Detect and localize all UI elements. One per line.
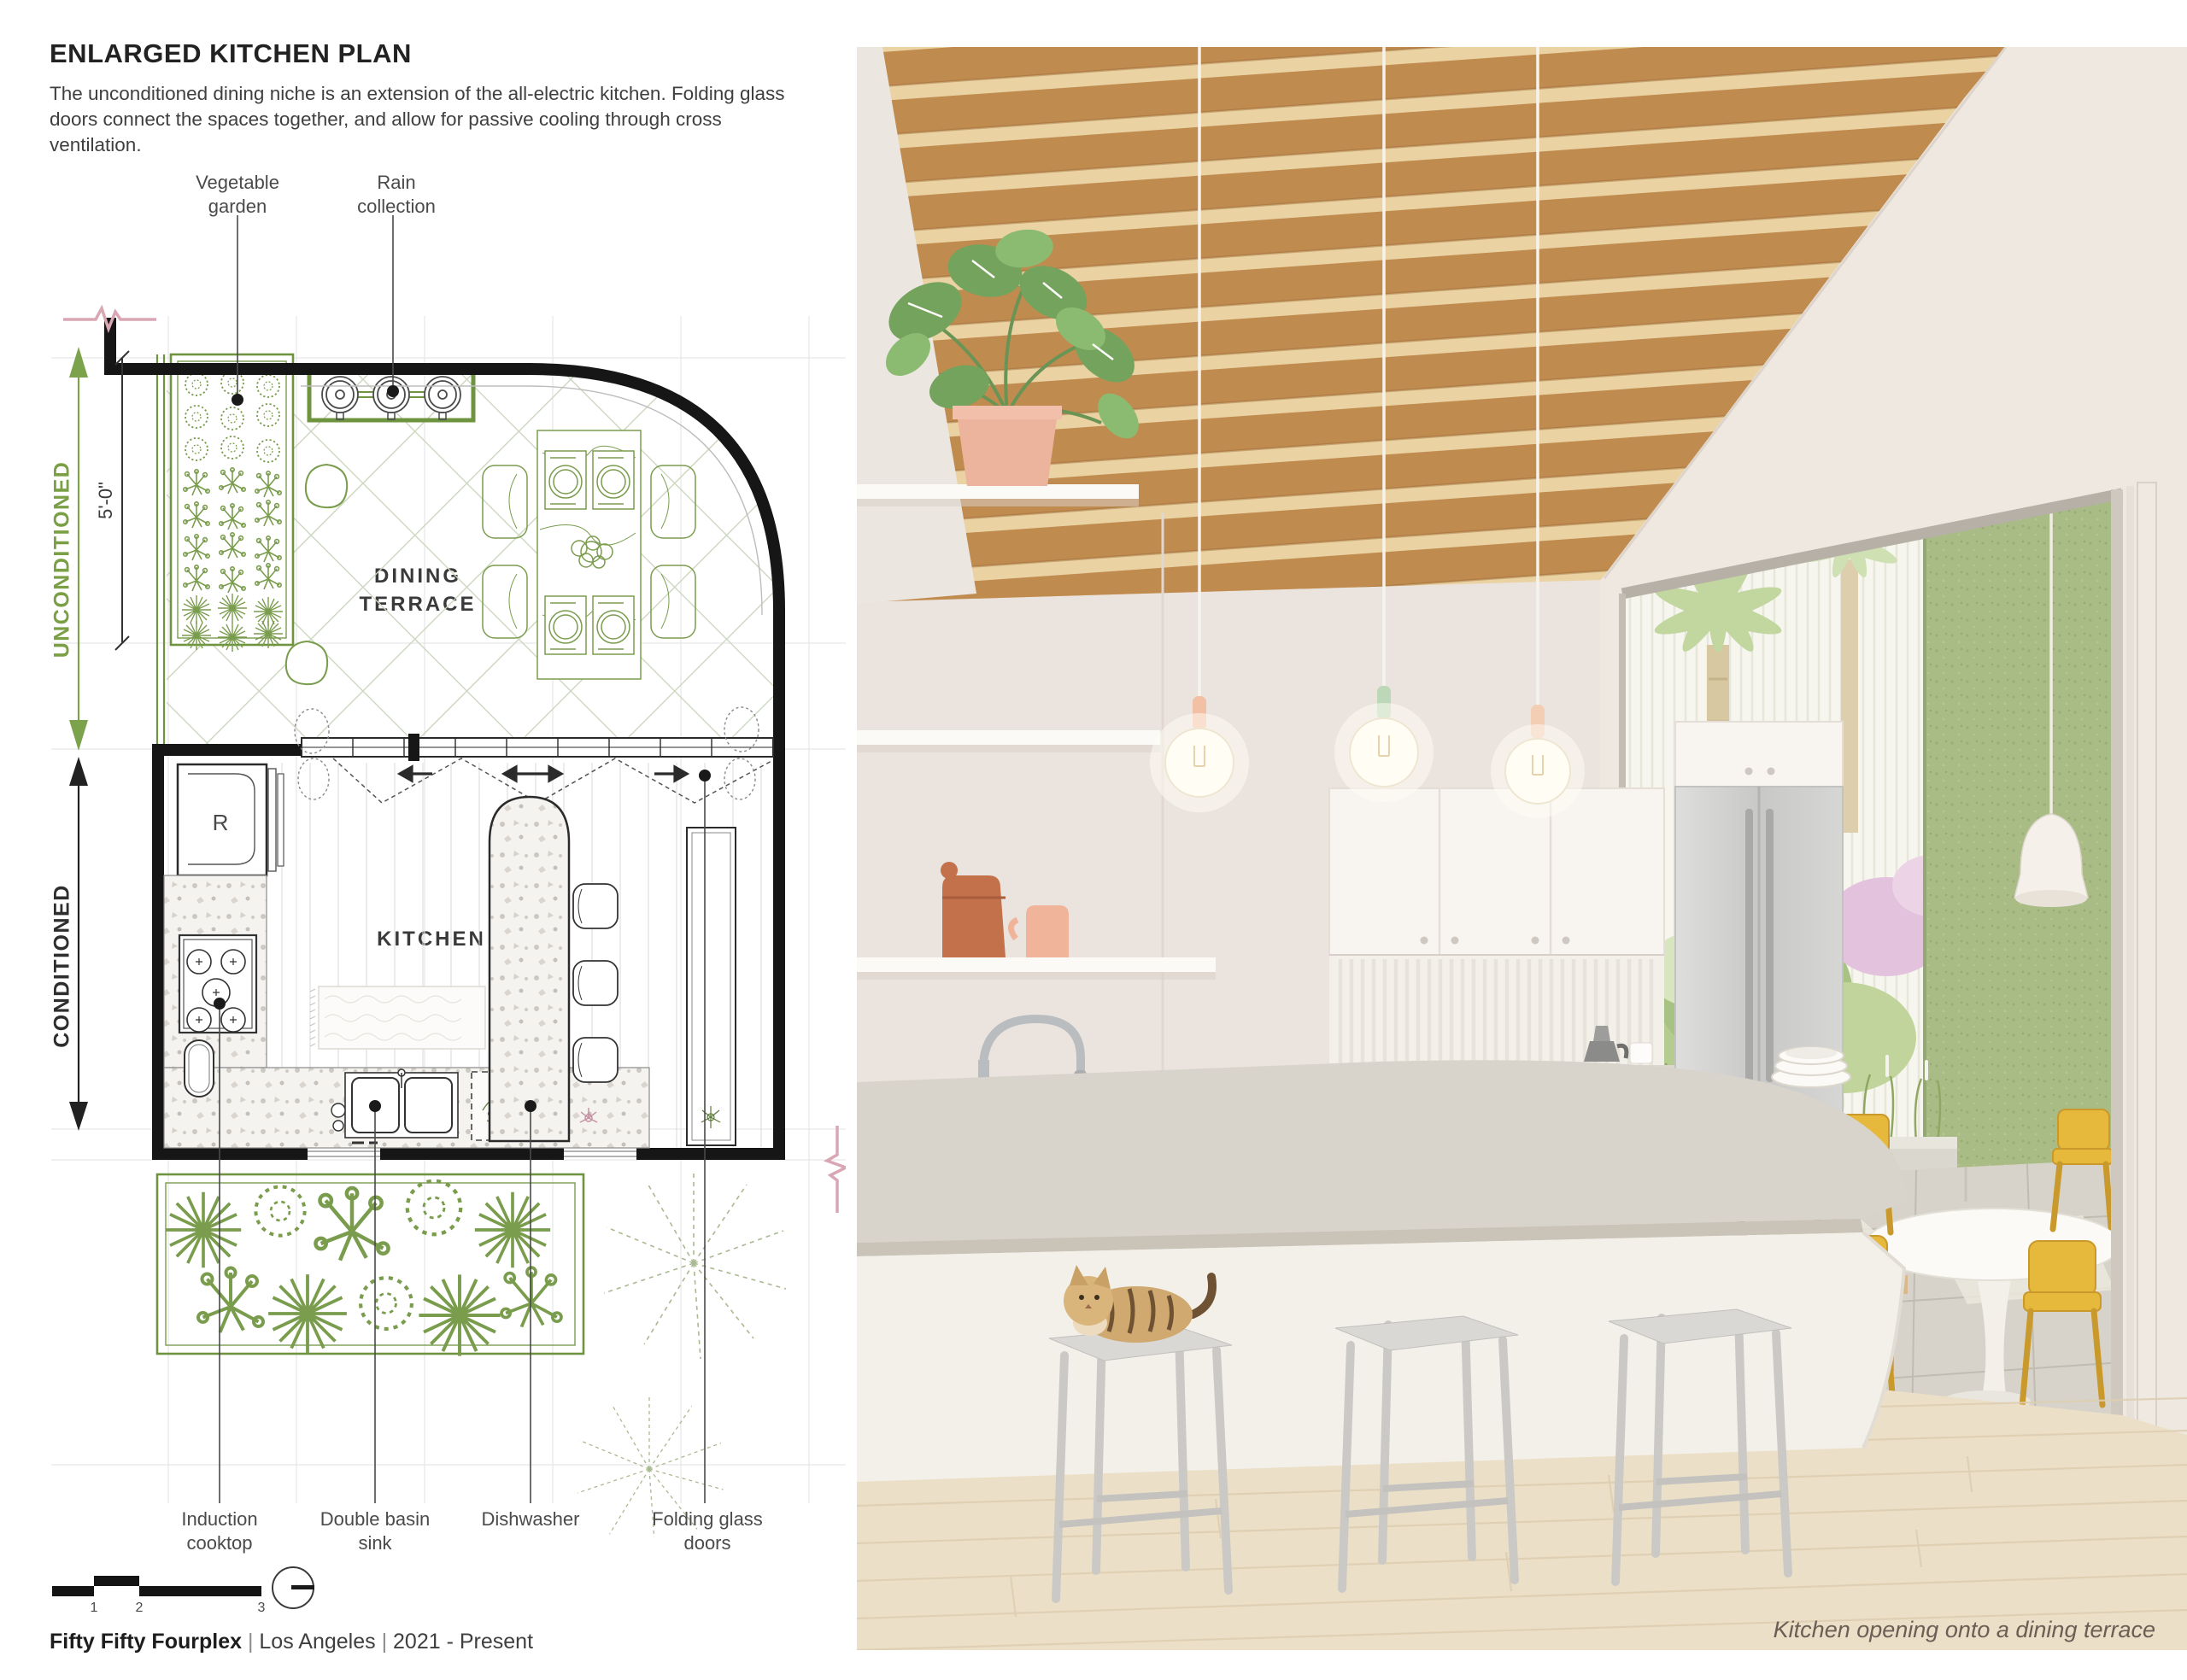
scale-tick-2: 2 [136,1601,144,1616]
north-indicator-icon [272,1566,314,1609]
scale-tick-1: 1 [91,1601,98,1616]
project-location: Los Angeles [259,1630,375,1654]
tall-cabinet-plan [687,828,736,1145]
project-name: Fifty Fifty Fourplex [50,1630,242,1654]
page-description: The unconditioned dining niche is an ext… [50,81,801,158]
refrigerator-plan: R [178,764,284,875]
project-footer: Fifty Fifty Fourplex | Los Angeles | 202… [50,1630,533,1654]
zone-extent-arrows [69,347,88,1131]
project-dates: 2021 - Present [393,1630,533,1654]
kitchen-floor-plan: R [51,171,846,1537]
bottom-planting-bed [157,1169,786,1537]
double-basin-sink-plan [331,1069,458,1143]
island-rug [310,986,494,1049]
bowl-stack [1772,1047,1850,1087]
bar-counter [857,1047,1906,1482]
dimension-line [115,351,129,650]
kitchen-render: Kitchen opening onto a dining terrace [857,47,2187,1650]
svg-text:R: R [213,810,229,835]
portfolio-page: ENLARGED KITCHEN PLAN The unconditioned … [0,0,2187,1680]
render-caption: Kitchen opening onto a dining terrace [1774,1617,2155,1642]
page-title: ENLARGED KITCHEN PLAN [50,38,412,69]
scale-tick-3: 3 [258,1601,266,1616]
induction-cooktop-plan [179,935,256,1033]
